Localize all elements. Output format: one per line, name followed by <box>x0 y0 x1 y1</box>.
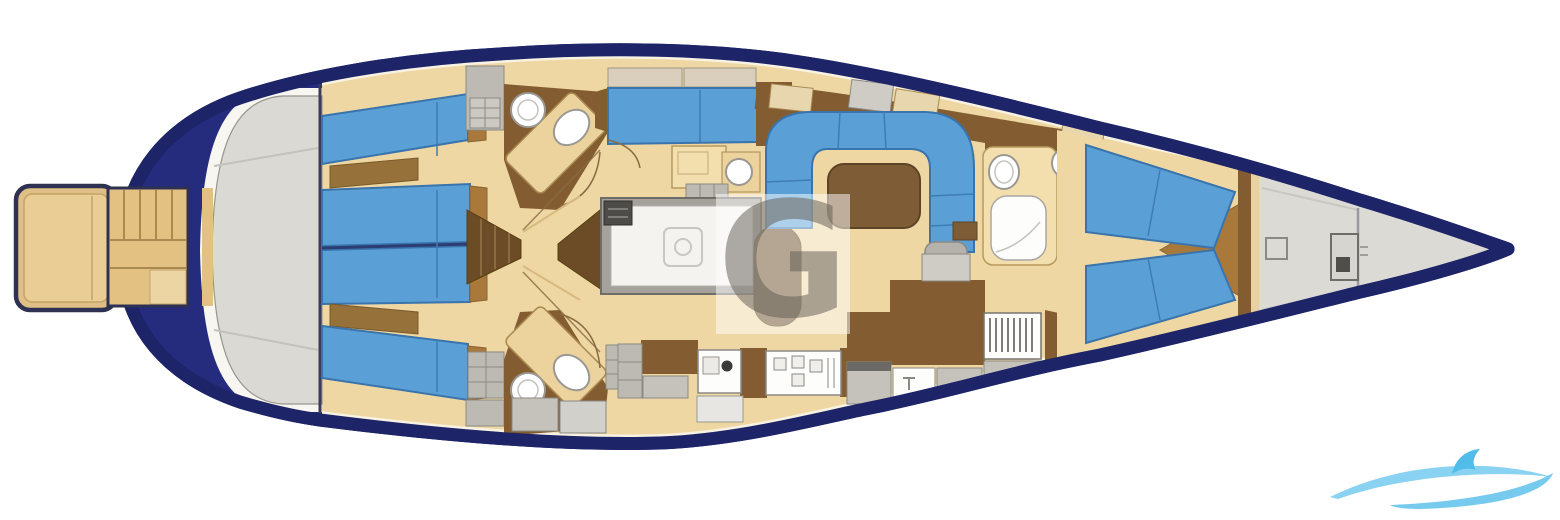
galley-counter <box>641 340 698 374</box>
locker-shelf <box>608 68 682 87</box>
icebox <box>922 254 970 281</box>
swim-platform <box>16 186 213 310</box>
faucet <box>722 361 733 372</box>
sink <box>511 93 545 127</box>
galley-counter <box>740 348 767 398</box>
hull-locker <box>643 376 688 398</box>
transom-deck <box>212 96 322 404</box>
hatch <box>604 201 632 225</box>
sink-basin <box>703 357 719 374</box>
single-berth <box>608 88 758 144</box>
swoosh-highlight <box>1430 477 1515 492</box>
cabinet <box>466 400 504 426</box>
yacht-deck-plan: G <box>0 0 1560 520</box>
drawer-grid <box>470 98 500 128</box>
side-table <box>953 222 977 240</box>
appliance-top <box>847 362 891 371</box>
cabin-wall <box>595 88 608 132</box>
logo-swoosh <box>1330 449 1553 509</box>
drawer-stack <box>618 344 642 398</box>
toilet <box>989 155 1019 189</box>
platform-panel <box>24 194 108 302</box>
aft-berth-starboard-inner <box>322 246 470 304</box>
hull-locker <box>560 401 606 433</box>
center-watermark: G <box>716 167 850 354</box>
drawer-grid <box>468 352 504 398</box>
hull-locker <box>697 396 743 422</box>
bulkhead-trim <box>1251 172 1259 328</box>
locker <box>769 84 813 112</box>
sail-locker <box>1259 100 1514 400</box>
step-notch <box>150 270 186 304</box>
deck-plan-canvas: G <box>0 0 1560 520</box>
forepeak-bulkhead <box>1238 166 1251 334</box>
aft-berth-port-inner <box>322 184 470 246</box>
watermark-letter: G <box>717 167 848 354</box>
forepeak <box>1259 100 1514 400</box>
aft-berths <box>322 92 487 400</box>
locker-shelf <box>684 68 756 87</box>
transom-step <box>202 188 213 306</box>
windlass-motor <box>1336 257 1350 272</box>
hull-locker <box>512 398 558 431</box>
